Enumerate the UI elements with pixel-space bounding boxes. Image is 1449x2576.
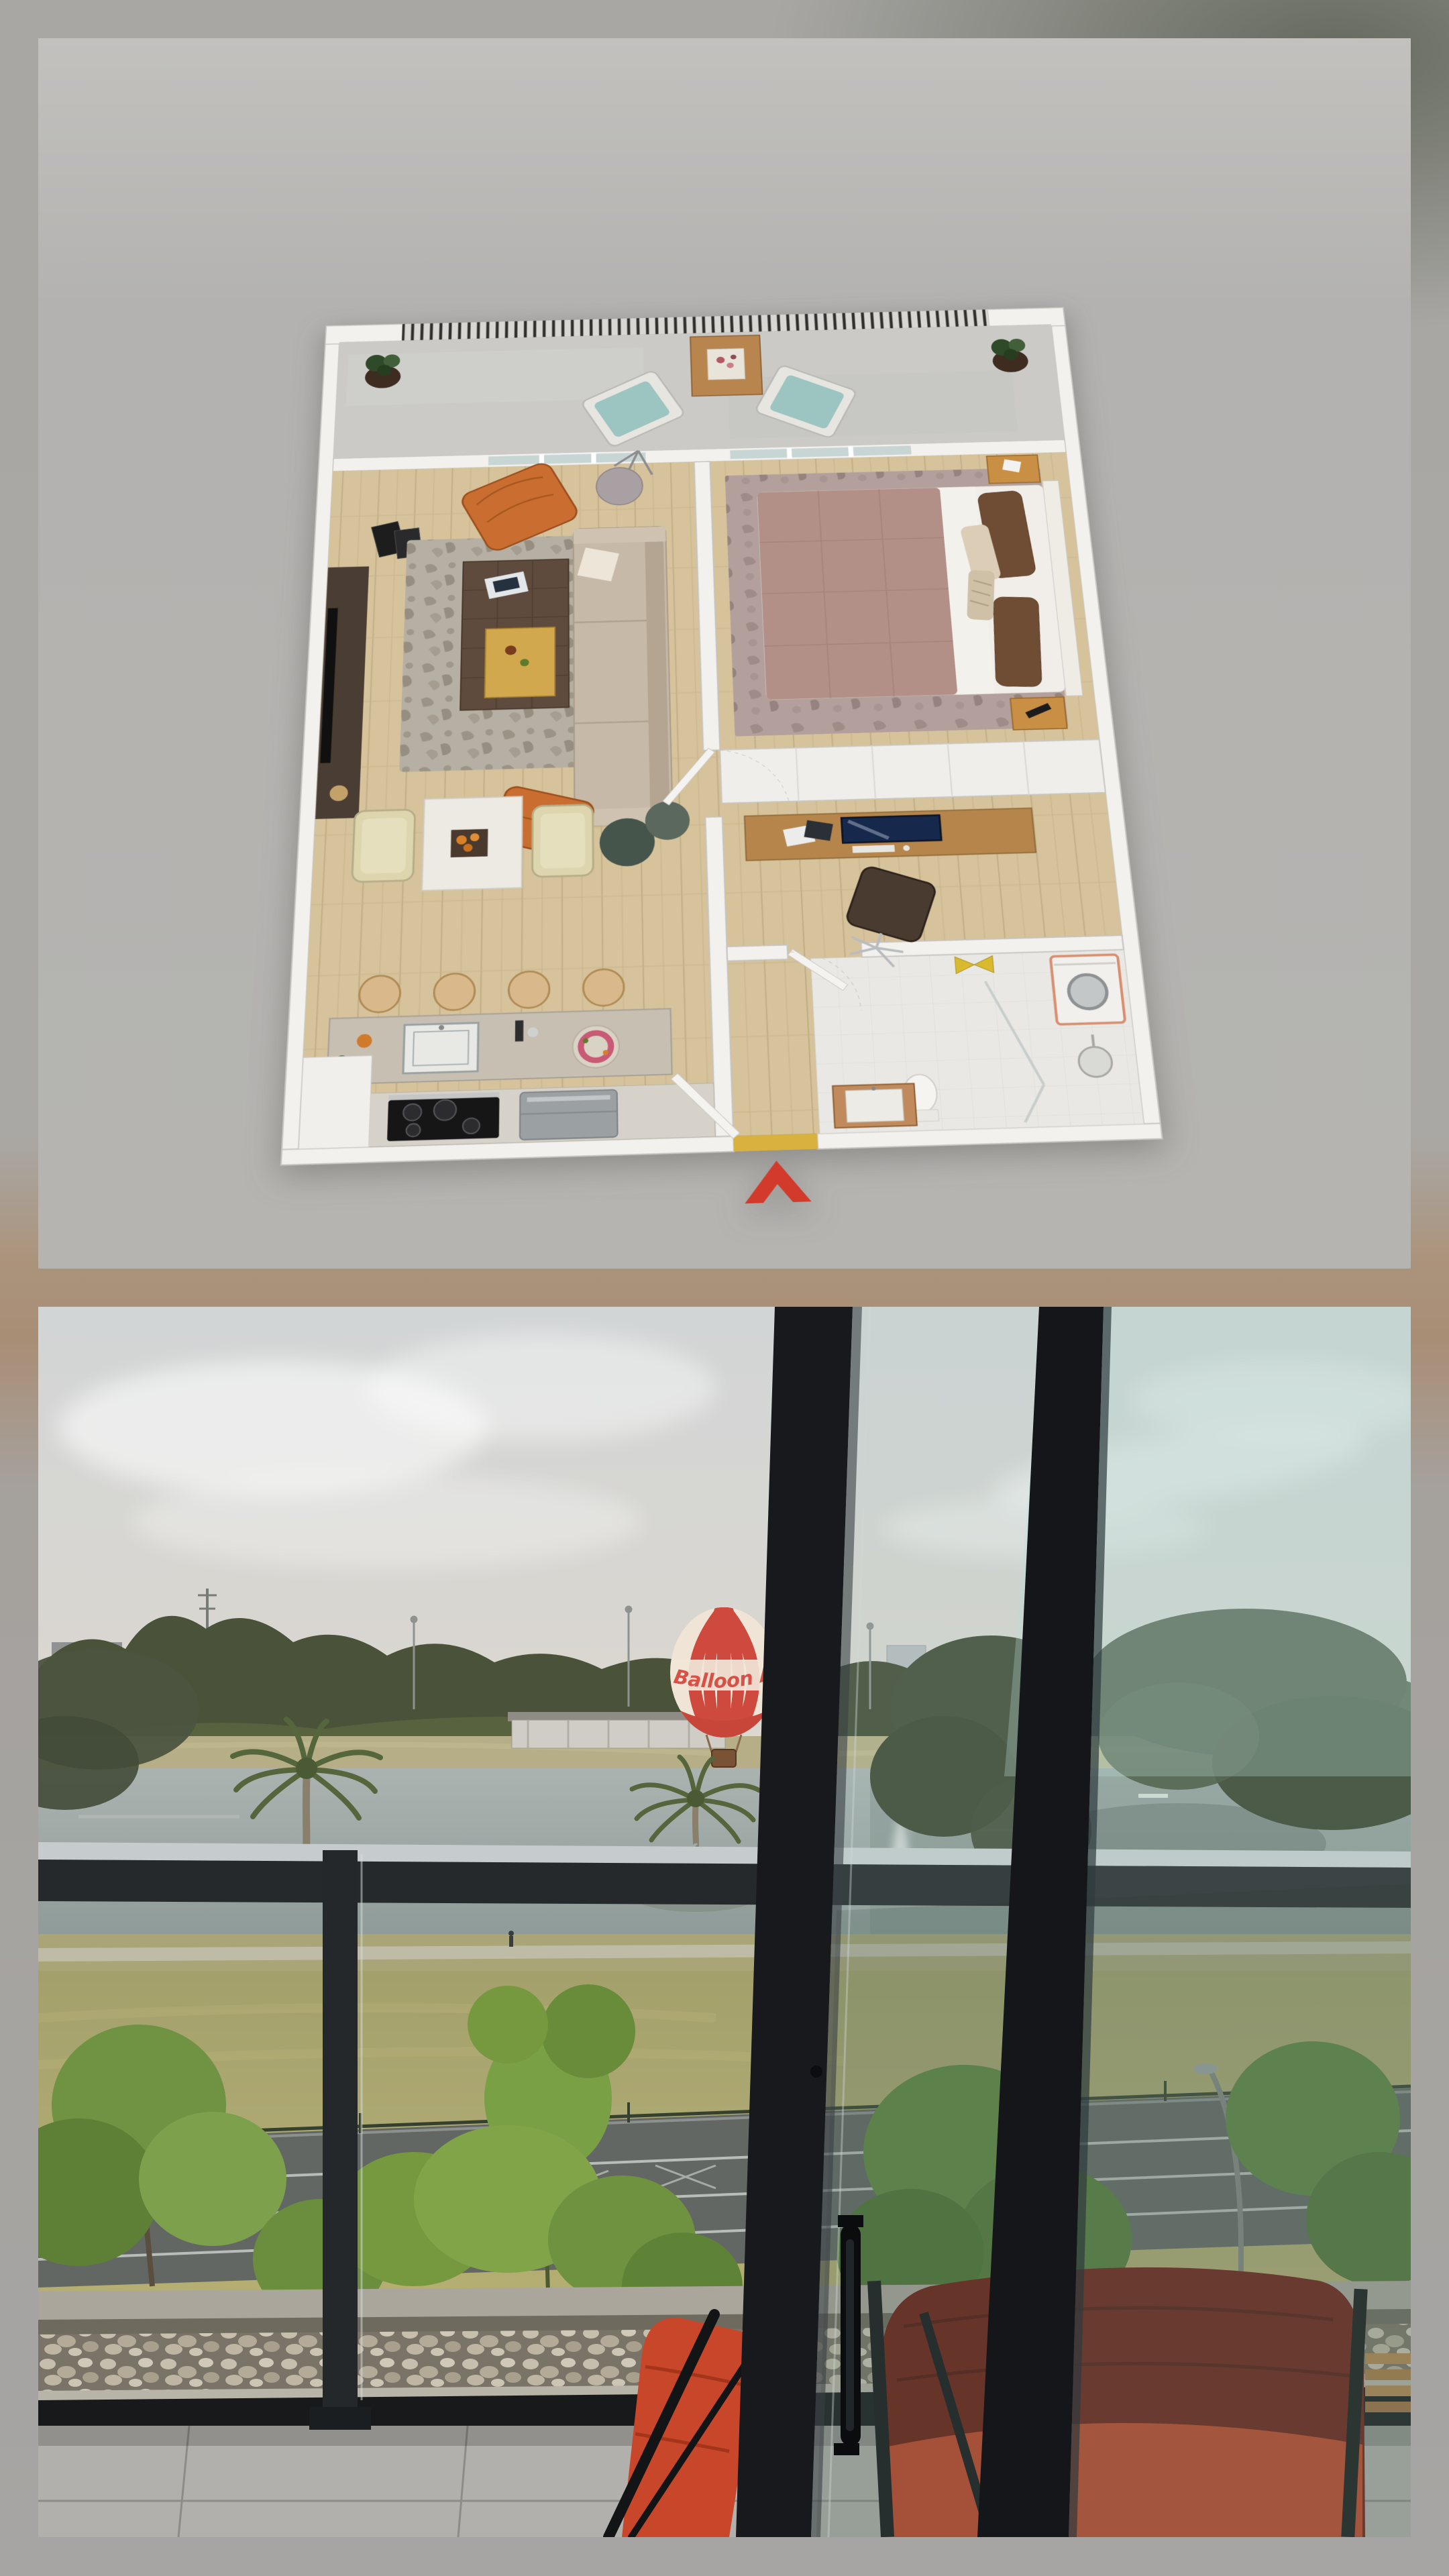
floor-plan-perspective [264,300,1182,1218]
dining-chair-left [352,810,415,882]
keyboard [853,845,895,853]
floor-plan-photo [38,38,1411,1269]
grey-appliance [520,1090,618,1140]
entry-mat [733,1134,818,1152]
vanity [833,1083,917,1128]
photo-collage: Balloon Air [0,0,1449,2576]
pedestrian [508,1931,514,1947]
door-lock [810,2065,822,2078]
washing-machine [1051,955,1126,1024]
cooktop [387,1092,499,1141]
dining-chair-right [533,804,594,877]
white-cabinet [299,1056,372,1149]
glass-tint [810,1307,1411,2537]
brass-tray [485,627,555,698]
coffee-table [460,559,569,710]
platter [572,1025,619,1069]
potted-plant-left [364,354,401,388]
bottle [515,1020,523,1042]
bedroom [710,454,1105,803]
monitor [841,815,941,843]
island-bench [325,1009,672,1085]
balcony-view-photo: Balloon Air [38,1307,1411,2537]
sofa [574,527,673,826]
balcony-view-svg: Balloon Air [38,1307,1411,2537]
floor-plan-svg [264,300,1182,1218]
potted-plant-right [990,339,1029,373]
nightstand-top [987,455,1040,483]
wardrobe [720,739,1106,803]
bed-duvet [757,488,958,700]
balcony-table [690,335,763,396]
entry-arrow-marker [739,1159,816,1209]
nightstand-bottom [1010,697,1067,730]
